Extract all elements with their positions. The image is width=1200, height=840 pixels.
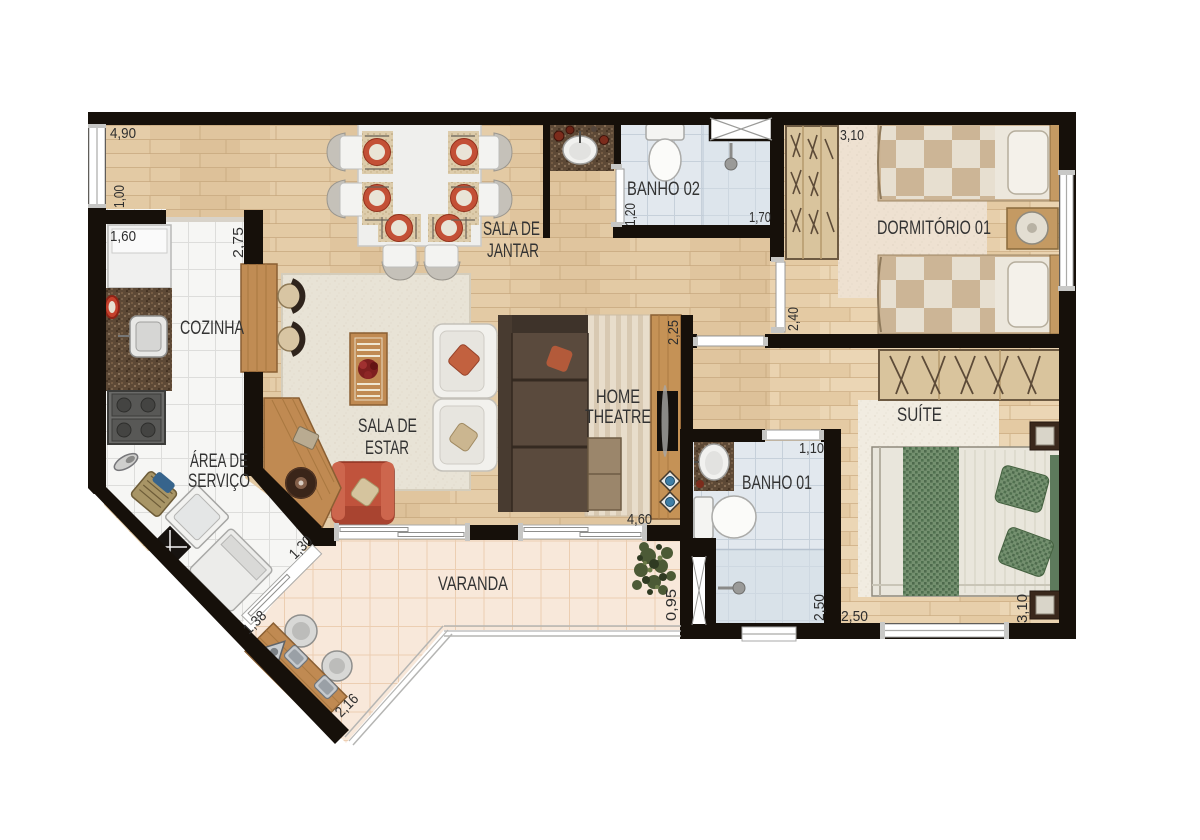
svg-text:3,10: 3,10 xyxy=(1014,594,1031,623)
svg-text:2,40: 2,40 xyxy=(785,307,802,331)
svg-text:4,90: 4,90 xyxy=(110,125,136,142)
svg-text:BANHO 02: BANHO 02 xyxy=(627,179,700,200)
svg-text:1,10: 1,10 xyxy=(799,440,824,457)
svg-text:3,10: 3,10 xyxy=(840,127,864,144)
svg-text:1,20: 1,20 xyxy=(622,203,639,226)
svg-text:2,25: 2,25 xyxy=(665,320,682,345)
svg-text:0,95: 0,95 xyxy=(663,589,680,621)
svg-text:4,60: 4,60 xyxy=(627,511,652,528)
svg-text:COZINHA: COZINHA xyxy=(180,318,244,339)
svg-text:SALA DE: SALA DE xyxy=(483,219,540,240)
svg-text:ÁREA DE: ÁREA DE xyxy=(190,451,248,472)
svg-text:BANHO 01: BANHO 01 xyxy=(742,473,812,494)
svg-text:1,70: 1,70 xyxy=(749,209,771,226)
svg-text:SERVIÇO: SERVIÇO xyxy=(188,471,250,492)
svg-text:DORMITÓRIO 01: DORMITÓRIO 01 xyxy=(877,217,991,239)
svg-text:SUÍTE: SUÍTE xyxy=(897,405,942,426)
svg-text:2,50: 2,50 xyxy=(811,594,828,621)
svg-text:2,50: 2,50 xyxy=(841,608,868,625)
svg-text:ESTAR: ESTAR xyxy=(365,438,409,459)
svg-text:1,00: 1,00 xyxy=(111,185,128,208)
svg-text:SALA DE: SALA DE xyxy=(358,416,417,437)
svg-text:HOME: HOME xyxy=(596,387,640,408)
svg-text:THEATRE: THEATRE xyxy=(585,407,651,428)
svg-text:JANTAR: JANTAR xyxy=(487,241,539,262)
svg-text:1,60: 1,60 xyxy=(110,228,136,245)
svg-text:VARANDA: VARANDA xyxy=(438,574,508,595)
svg-text:2,75: 2,75 xyxy=(230,227,247,258)
